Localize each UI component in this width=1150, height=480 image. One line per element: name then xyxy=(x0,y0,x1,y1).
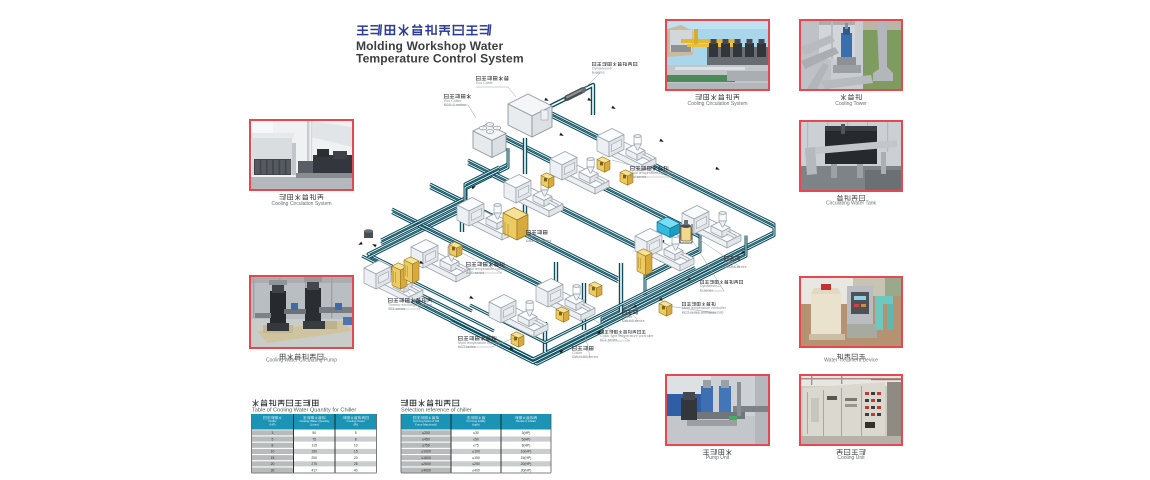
svg-text:15(HP): 15(HP) xyxy=(521,456,532,460)
svg-text:Force Machine(t): Force Machine(t) xyxy=(415,423,437,427)
svg-text:TE1 series: TE1 series xyxy=(388,307,405,311)
svg-text:(HP): (HP) xyxy=(270,423,276,427)
svg-text:15: 15 xyxy=(271,456,275,460)
svg-text:≤50: ≤50 xyxy=(473,437,479,441)
svg-text:50: 50 xyxy=(312,431,316,435)
svg-text:Temperature Control System: Temperature Control System xyxy=(356,52,524,66)
svg-text:20: 20 xyxy=(271,462,275,466)
svg-text:(kg/h): (kg/h) xyxy=(472,423,479,427)
svg-text:40: 40 xyxy=(354,468,358,472)
svg-text:≤450: ≤450 xyxy=(422,437,430,441)
svg-text:10(HP): 10(HP) xyxy=(521,450,532,454)
svg-text:KCT series: KCT series xyxy=(458,345,476,349)
svg-text:≤100: ≤100 xyxy=(472,450,480,454)
svg-text:≤400: ≤400 xyxy=(472,468,480,472)
svg-text:20: 20 xyxy=(354,456,358,460)
svg-text:Cooling Tower: Cooling Tower xyxy=(835,101,867,107)
svg-text:3: 3 xyxy=(272,431,274,435)
svg-text:ECS-C series: ECS-C series xyxy=(444,103,466,107)
svg-text:≤1600: ≤1600 xyxy=(421,456,431,460)
svg-text:Cooling Water Circulating Pum: Cooling Water Circulating Pump xyxy=(266,358,337,364)
svg-text:Circulating Water Tank: Circulating Water Tank xyxy=(826,201,877,207)
svg-text:CW-KS series: CW-KS series xyxy=(724,265,747,269)
svg-text:8: 8 xyxy=(355,437,357,441)
svg-text:Table of Cooling Water Quantit: Table of Cooling Water Quantity for Chil… xyxy=(252,408,356,414)
svg-text:5(HP): 5(HP) xyxy=(522,437,531,441)
svg-text:CA-H-KS series: CA-H-KS series xyxy=(526,239,552,243)
svg-text:Cooling Unit: Cooling Unit xyxy=(837,455,865,461)
svg-text:8(HP): 8(HP) xyxy=(522,444,531,448)
svg-text:Cooling Circulation System: Cooling Circulation System xyxy=(271,201,331,207)
svg-text:30(HP): 30(HP) xyxy=(521,468,532,472)
svg-text:10: 10 xyxy=(271,450,275,454)
svg-text:≤30: ≤30 xyxy=(473,431,479,435)
svg-text:KCT series 300%(special): KCT series 300%(special) xyxy=(682,310,723,314)
svg-text:≤750: ≤750 xyxy=(422,444,430,448)
svg-text:15: 15 xyxy=(354,450,358,454)
svg-text:150: 150 xyxy=(311,450,317,454)
svg-text:8: 8 xyxy=(272,444,274,448)
svg-text:CW-KS series: CW-KS series xyxy=(622,319,645,323)
svg-text:KCL series: KCL series xyxy=(600,338,618,342)
svg-text:≤1000: ≤1000 xyxy=(421,450,431,454)
svg-text:275: 275 xyxy=(311,462,317,466)
svg-text:TW series: TW series xyxy=(630,175,646,179)
svg-text:417: 417 xyxy=(311,468,317,472)
svg-text:Eco Cable: Eco Cable xyxy=(476,81,493,85)
svg-text:≤75: ≤75 xyxy=(473,444,479,448)
svg-text:10: 10 xyxy=(354,444,358,448)
svg-text:≤4000: ≤4000 xyxy=(421,468,431,472)
svg-text:Water Treatment Device: Water Treatment Device xyxy=(824,358,878,364)
svg-text:30: 30 xyxy=(271,468,275,472)
svg-text:F series: F series xyxy=(592,71,605,75)
svg-text:KCD series: KCD series xyxy=(466,271,484,275)
svg-text:≤250: ≤250 xyxy=(472,462,480,466)
svg-text:Selection reference of chiller: Selection reference of chiller xyxy=(401,408,472,414)
svg-text:3(HP): 3(HP) xyxy=(522,431,531,435)
svg-text:25: 25 xyxy=(354,462,358,466)
svg-text:20(HP): 20(HP) xyxy=(521,462,532,466)
svg-text:Cooling Circulation System: Cooling Circulation System xyxy=(687,101,747,107)
svg-text:115: 115 xyxy=(312,444,318,448)
svg-text:5: 5 xyxy=(272,437,274,441)
svg-text:CW-H-KS series: CW-H-KS series xyxy=(572,355,598,359)
svg-text:Model of Chiller: Model of Chiller xyxy=(516,419,536,423)
svg-text:Pump Unit: Pump Unit xyxy=(706,455,730,461)
svg-text:75: 75 xyxy=(312,437,316,441)
svg-text:(L/min): (L/min) xyxy=(310,423,319,427)
svg-text:200: 200 xyxy=(311,456,317,460)
svg-text:≤150: ≤150 xyxy=(472,456,480,460)
svg-text:D series: D series xyxy=(700,288,713,292)
svg-text:≤2500: ≤2500 xyxy=(421,462,431,466)
svg-text:(Rt): (Rt) xyxy=(353,423,358,427)
svg-text:≤200: ≤200 xyxy=(422,431,430,435)
svg-text:5: 5 xyxy=(355,431,357,435)
